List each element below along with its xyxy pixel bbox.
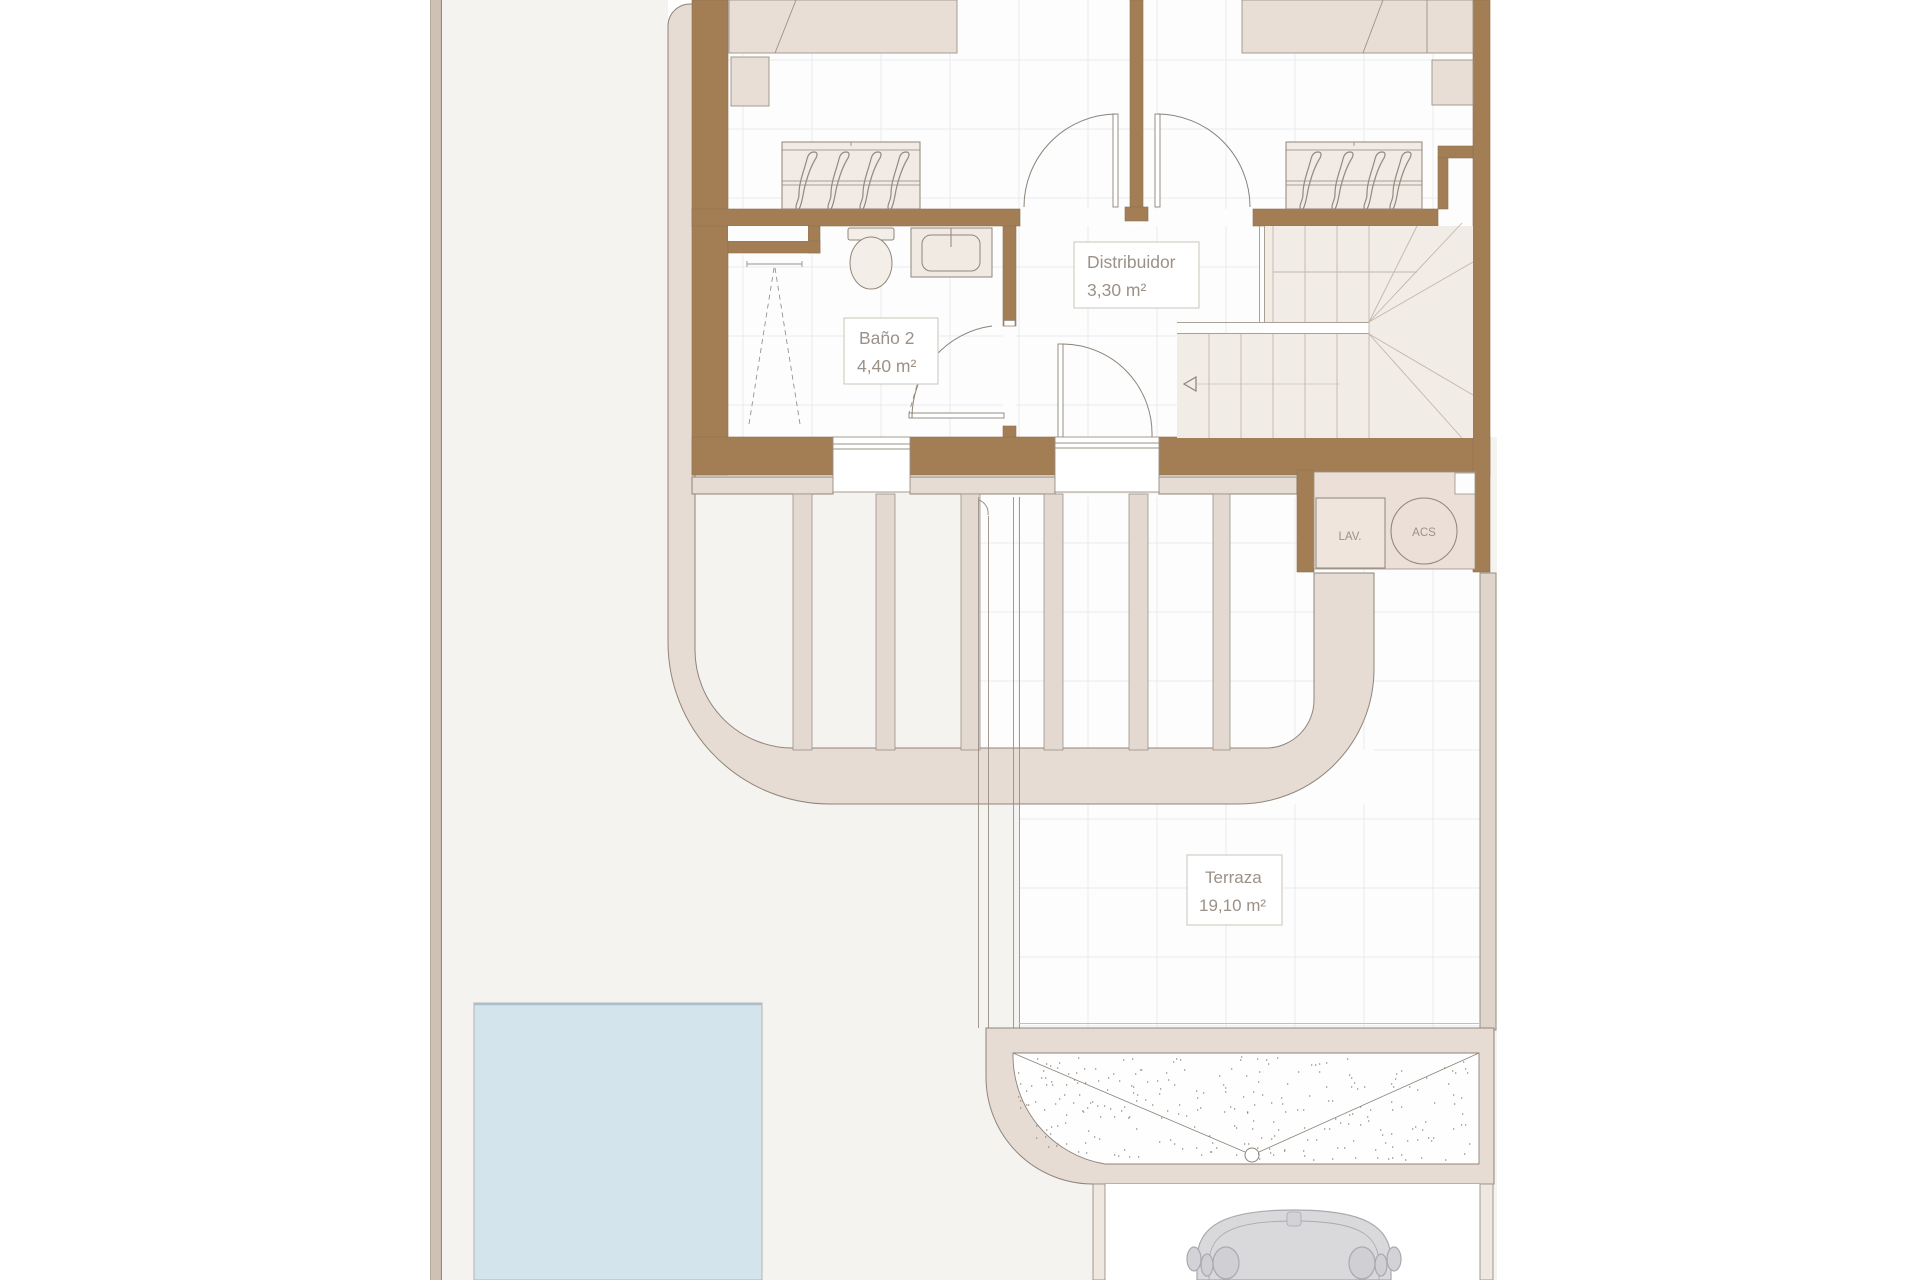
svg-text:Baño 2: Baño 2 (859, 328, 914, 348)
svg-text:LAV.: LAV. (1338, 531, 1361, 543)
svg-text:4,40 m²: 4,40 m² (857, 356, 916, 376)
svg-text:Distribuidor: Distribuidor (1087, 252, 1176, 272)
svg-text:19,10 m²: 19,10 m² (1199, 896, 1266, 915)
svg-text:3,30 m²: 3,30 m² (1087, 280, 1146, 300)
svg-text:ACS: ACS (1412, 527, 1436, 539)
svg-text:Terraza: Terraza (1205, 868, 1262, 887)
